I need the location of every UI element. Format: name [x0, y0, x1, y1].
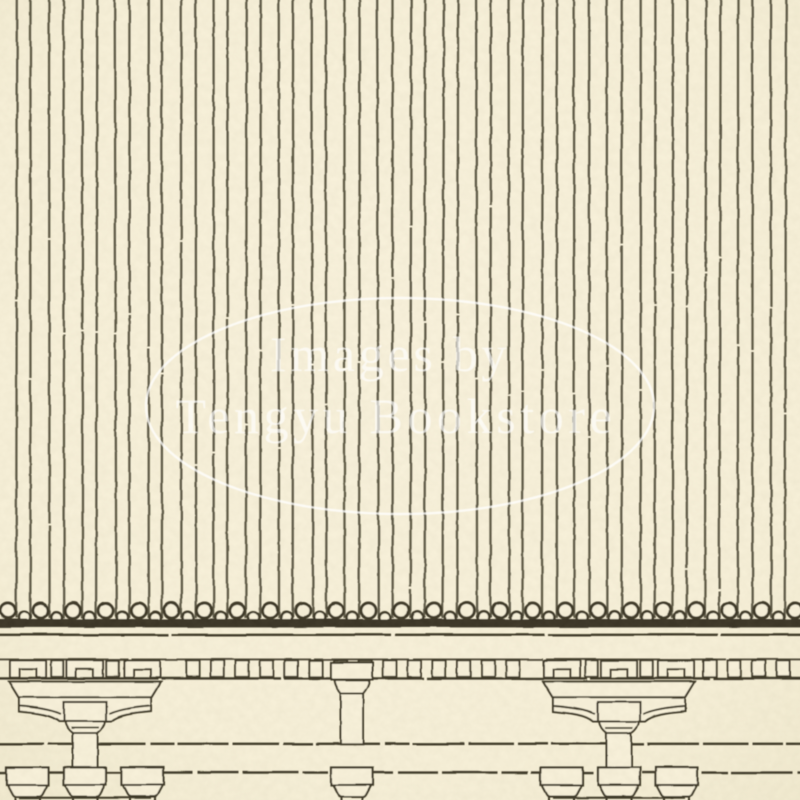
svg-text:Images by: Images by [270, 326, 510, 382]
svg-text:Tengyu Bookstore: Tengyu Bookstore [176, 388, 617, 444]
